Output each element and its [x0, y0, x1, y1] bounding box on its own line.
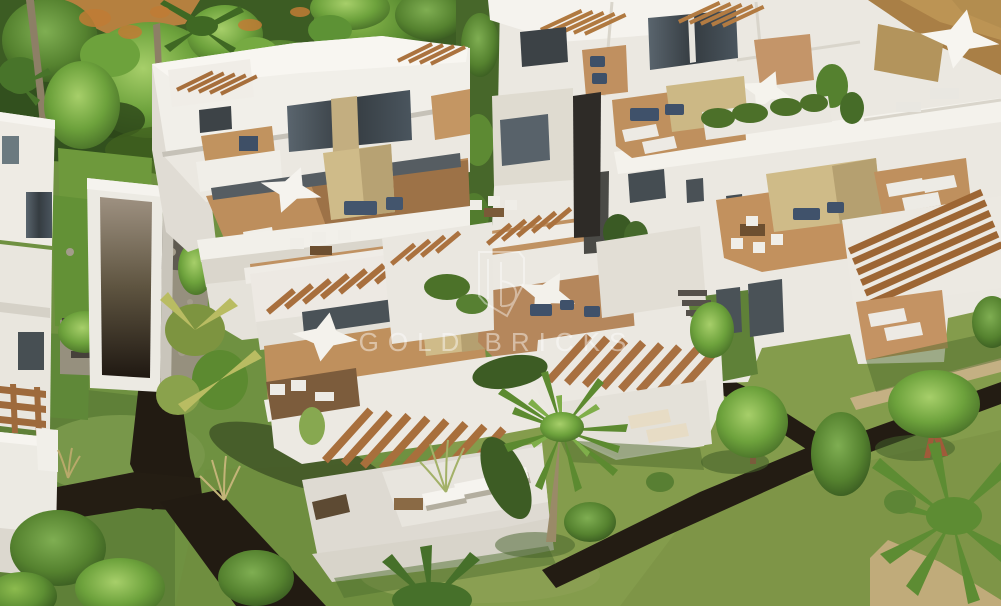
svg-text:GOLD BRICKS: GOLD BRICKS — [359, 327, 636, 357]
